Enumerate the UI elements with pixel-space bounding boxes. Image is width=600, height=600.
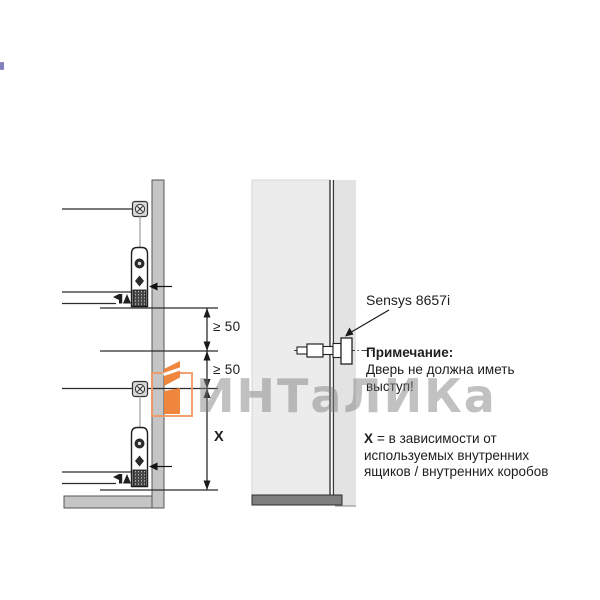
dimension-label-x: X (214, 429, 224, 445)
note-title: Примечание: (366, 344, 515, 361)
diagram-canvas: ≥ 50 ≥ 50 X Sensys 8657i Примечание: Две… (0, 0, 600, 600)
note-line: Дверь не должна иметь (366, 361, 515, 378)
cabinet-bottom-panel (64, 496, 152, 508)
x-legend-block: X= в зависимости от используемых внутрен… (364, 431, 548, 481)
door-panel (252, 180, 330, 497)
note-line: выступ! (366, 378, 515, 395)
legend-x-symbol: X (364, 431, 373, 446)
mounting-screw-icon (133, 382, 148, 397)
door-gap-lines (330, 180, 334, 497)
mounting-screw-icon (133, 202, 148, 217)
cabinet-side-panel (152, 180, 164, 508)
legend-line: ящиков / внутренних коробов (364, 464, 548, 481)
legend-line: X= в зависимости от (364, 431, 548, 448)
note-block: Примечание: Дверь не должна иметь выступ… (366, 344, 515, 395)
technical-drawing-svg (0, 0, 600, 600)
cabinet-section (62, 180, 218, 508)
hinge-product-label: Sensys 8657i (366, 292, 450, 308)
dimension-lines (204, 308, 211, 490)
dimension-label-top: ≥ 50 (213, 319, 240, 334)
dimension-label-middle: ≥ 50 (213, 362, 240, 377)
door-bottom-edge (252, 495, 342, 505)
legend-line: используемых внутренних (364, 448, 548, 465)
legend-line-rest: = в зависимости от (377, 431, 497, 446)
